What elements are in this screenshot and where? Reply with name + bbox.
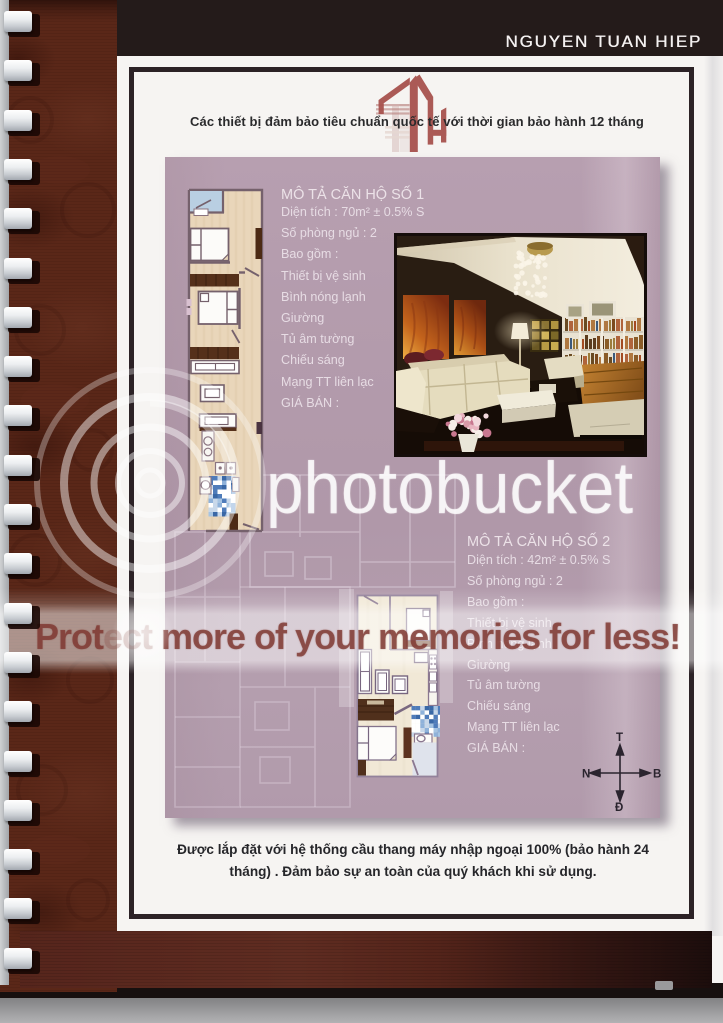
svg-text:N: N xyxy=(582,769,590,781)
svg-text:Đ: Đ xyxy=(615,802,623,814)
svg-text:T: T xyxy=(616,732,623,744)
svg-text:B: B xyxy=(653,769,661,781)
